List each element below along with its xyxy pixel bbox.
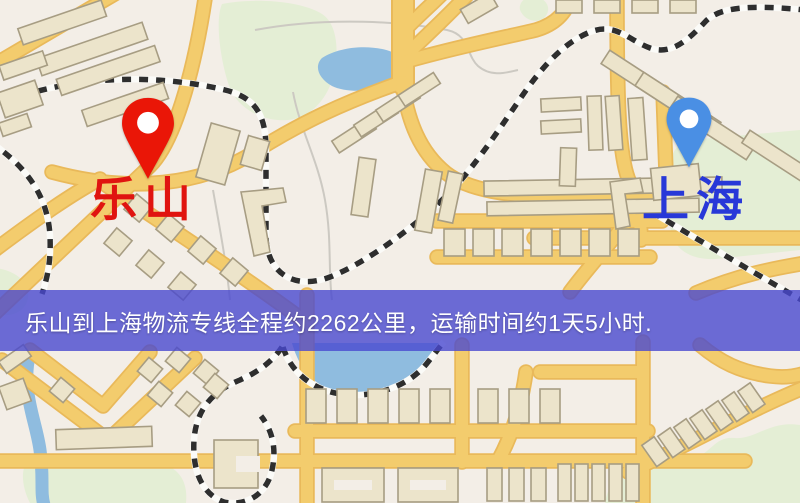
blue-pin-shape (667, 98, 712, 168)
red-pin-icon (119, 95, 177, 183)
red-pin-shape (122, 98, 174, 179)
route-info-banner: 乐山到上海物流专线全程约2262公里，运输时间约1天5小时. (0, 290, 800, 351)
marker-shanghai[interactable] (664, 96, 714, 170)
map-canvas[interactable] (0, 0, 800, 503)
pin-hole (137, 112, 159, 134)
map-screenshot: 乐山 上海 乐山到上海物流专线全程约2262公里，运输时间约1天5小时. (0, 0, 800, 503)
route-info-text: 乐山到上海物流专线全程约2262公里，运输时间约1天5小时. (25, 304, 652, 338)
pin-hole (680, 110, 699, 129)
label-leshan: 乐山 (90, 176, 198, 223)
blue-pin-icon (664, 96, 714, 170)
marker-leshan[interactable] (119, 95, 177, 183)
label-shanghai: 上海 (642, 176, 750, 223)
